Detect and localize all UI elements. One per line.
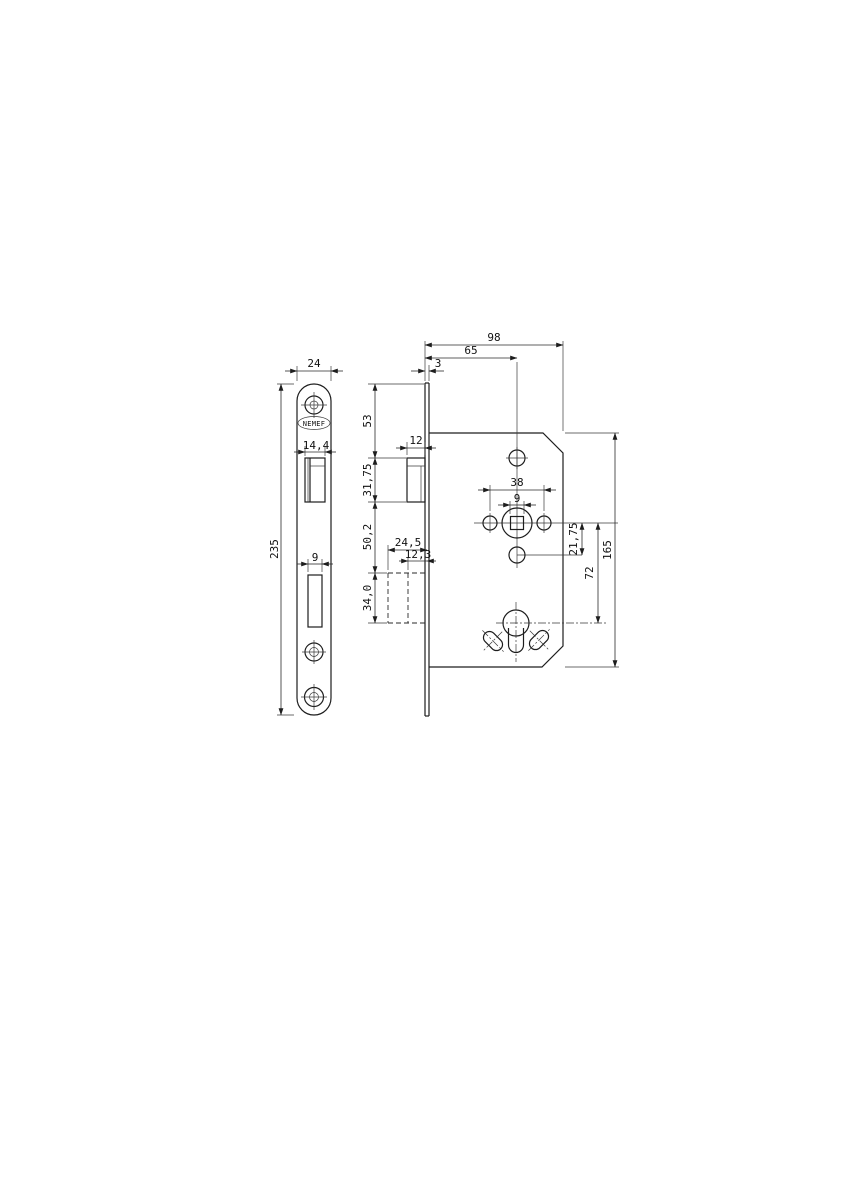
dim-follower-to-hole-label: 21,75 (567, 522, 580, 555)
dim-hole-spacing-label: 38 (510, 476, 523, 489)
cylinder-fixing-slot-right (519, 620, 559, 660)
middle-screw-hole (302, 640, 326, 664)
faceplate-front-view: NEMEF (268, 357, 343, 715)
euro-cylinder-hole (496, 602, 607, 662)
lock-technical-drawing: NEMEF (0, 0, 842, 1191)
dim-latch-projection-label: 12 (409, 434, 422, 447)
dim-faceplate-length: 235 (268, 384, 294, 715)
bottom-screw-hole (301, 684, 327, 710)
dim-latch-to-cylinder-label: 50,2 (361, 524, 374, 551)
dim-latch-face-width: 14,4 (294, 439, 336, 456)
dim-case-depth-label: 98 (487, 331, 500, 344)
brand-label: NEMEF (303, 420, 326, 428)
lock-case-outline (429, 433, 563, 667)
faceplate-outline (297, 384, 331, 715)
dim-faceplate-thickness-label: 3 (435, 357, 442, 370)
deadbolt-slot (308, 575, 322, 627)
dim-deadbolt-slot-width-label: 9 (312, 551, 319, 564)
dim-latch-projection: 12 (396, 434, 436, 455)
dim-follower-to-cylinder-label: 72 (583, 566, 596, 579)
case-top-hole (506, 447, 528, 469)
dim-follower-to-cylinder: 72 (583, 523, 598, 623)
latch-opening-front (305, 458, 325, 502)
dim-latch-height: 31,75 (361, 458, 406, 502)
dim-deadbolt-slot-width: 9 (297, 551, 333, 572)
dim-follower-to-hole: 21,75 (567, 522, 582, 555)
dim-latch-face-width-label: 14,4 (303, 439, 330, 452)
dim-backset: 65 (425, 344, 517, 358)
dim-spindle-square-label: 9 (514, 492, 521, 505)
dim-faceplate-width-label: 24 (307, 357, 321, 370)
dim-faceplate-thickness: 3 (411, 357, 444, 381)
dim-cylinder-block-height-label: 34,0 (361, 585, 374, 612)
cylinder-fixing-slot-left (473, 621, 513, 661)
dim-case-depth: 98 (425, 331, 563, 431)
dim-backset-label: 65 (464, 344, 477, 357)
dim-case-height-label: 165 (601, 540, 614, 560)
dim-cylinder-block-height: 34,0 (361, 573, 387, 623)
dim-latch-height-label: 31,75 (361, 463, 374, 496)
top-screw-hole (301, 392, 327, 418)
faceplate-edge-view: 3 12 53 31,75 50,2 (361, 357, 444, 716)
lock-case-view: 98 65 38 9 21,75 (425, 331, 619, 667)
cylinder-block-hidden (388, 573, 427, 623)
dim-faceplate-width: 24 (285, 357, 343, 381)
dim-faceplate-length-label: 235 (268, 539, 281, 559)
dim-cylinder-inner-width-label: 12,3 (405, 548, 432, 561)
latch-block-side (407, 458, 425, 502)
nemef-logo: NEMEF (298, 417, 330, 430)
dim-top-to-latch-label: 53 (361, 414, 374, 427)
dim-latch-to-cylinder: 50,2 (361, 502, 387, 573)
technical-drawing-page: NEMEF (0, 0, 842, 1191)
dim-cylinder-inner-width: 12,3 (399, 548, 436, 570)
